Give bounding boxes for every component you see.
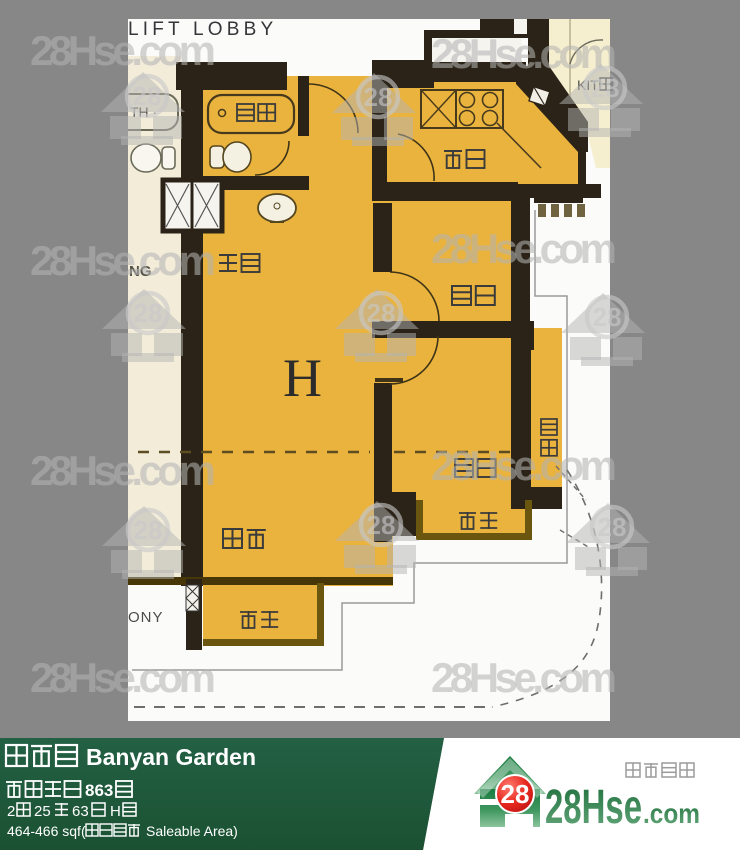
svg-text:.com: .com (643, 798, 700, 829)
svg-text:28Hse.com: 28Hse.com (431, 30, 617, 77)
svg-text:28: 28 (591, 73, 620, 103)
svg-text:ONY: ONY (128, 609, 164, 626)
svg-text:28: 28 (501, 779, 530, 809)
svg-text:Banyan Garden: Banyan Garden (86, 744, 256, 770)
svg-text:464-466 sqf(: 464-466 sqf( (7, 823, 86, 839)
svg-text:28Hse.com: 28Hse.com (431, 654, 617, 701)
svg-text:28: 28 (367, 298, 396, 328)
svg-text:Saleable Area): Saleable Area) (146, 823, 238, 839)
svg-text:28Hse.com: 28Hse.com (30, 237, 216, 284)
svg-text:28: 28 (134, 515, 163, 545)
svg-text:28Hse.com: 28Hse.com (30, 27, 216, 74)
svg-text:863: 863 (85, 781, 113, 800)
svg-text:28: 28 (367, 510, 396, 540)
svg-text:H: H (283, 348, 322, 408)
svg-text:28: 28 (593, 302, 622, 332)
svg-text:63: 63 (72, 803, 89, 820)
svg-text:2: 2 (7, 803, 15, 820)
svg-text:H: H (110, 803, 121, 820)
svg-text:28Hse.com: 28Hse.com (431, 225, 617, 272)
svg-text:28Hse.com: 28Hse.com (30, 654, 216, 701)
svg-text:28Hse.com: 28Hse.com (431, 442, 617, 489)
svg-text:25: 25 (34, 803, 51, 820)
svg-text:28: 28 (134, 298, 163, 328)
svg-text:28Hse: 28Hse (545, 781, 642, 834)
svg-text:28: 28 (598, 512, 627, 542)
svg-text:28: 28 (364, 82, 393, 112)
svg-text:28Hse.com: 28Hse.com (30, 447, 216, 494)
svg-text:28: 28 (133, 81, 162, 111)
